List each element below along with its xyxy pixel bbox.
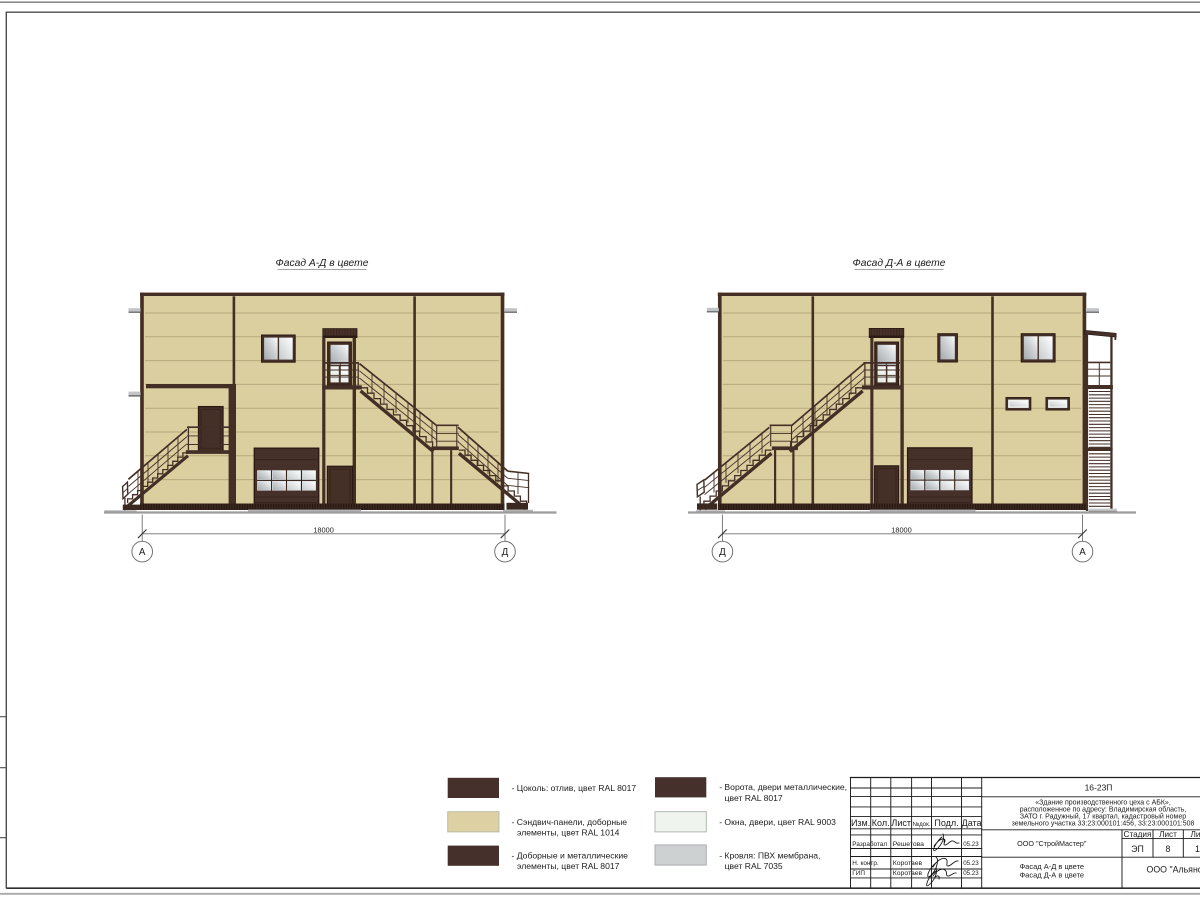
svg-text:18000: 18000 [313,526,334,535]
svg-text:- Кровля: ПВХ мембрана,: - Кровля: ПВХ мембрана, [719,851,820,861]
svg-text:элементы, цвет RAL 8017: элементы, цвет RAL 8017 [517,861,620,871]
svg-text:Лис: Лис [1190,830,1200,839]
svg-text:Фасад А-Д в цвете: Фасад А-Д в цвете [276,258,369,269]
svg-text:05.23: 05.23 [963,860,979,867]
svg-text:А: А [139,547,146,558]
svg-text:№док.: №док. [912,821,930,828]
svg-text:Д: Д [719,547,726,558]
svg-text:Кол.: Кол. [872,818,890,828]
svg-text:Лист: Лист [891,818,911,828]
svg-text:Дата: Дата [962,818,982,828]
svg-text:Решетова: Решетова [893,841,924,848]
svg-text:Коротаев: Коротаев [893,870,923,877]
svg-text:ООО "Альянс": ООО "Альянс" [1147,865,1200,875]
svg-text:Изм.: Изм. [851,818,870,828]
svg-text:цвет RAL 7035: цвет RAL 7035 [725,861,783,871]
svg-text:- Ворота, двери металлические,: - Ворота, двери металлические, [719,782,847,792]
svg-text:- Доборные и металлические: - Доборные и металлические [512,851,629,861]
svg-text:Фасад А-Д в цвете: Фасад А-Д в цвете [1019,862,1084,871]
svg-text:ГИП: ГИП [852,870,865,877]
svg-text:расположенное по адресу: Влади: расположенное по адресу: Владимирская об… [1020,806,1187,814]
svg-text:А: А [1079,547,1086,558]
svg-text:8: 8 [1166,844,1171,854]
svg-text:ЭП: ЭП [1131,844,1144,854]
svg-text:1: 1 [1195,844,1200,854]
svg-text:18000: 18000 [891,526,912,535]
svg-text:ЗАТО г. Радужный, 17 квартал,: ЗАТО г. Радужный, 17 квартал, кадастровы… [1020,812,1186,820]
svg-text:цвет RAL 8017: цвет RAL 8017 [725,793,783,803]
svg-text:Д: Д [502,547,509,558]
svg-text:ООО "СтройМастер": ООО "СтройМастер" [1017,839,1087,848]
svg-text:Стадия: Стадия [1124,830,1152,839]
svg-text:- Сэндвич-панели, доборные: - Сэндвич-панели, доборные [512,817,628,827]
svg-text:- Окна, двери, цвет RAL 9003: - Окна, двери, цвет RAL 9003 [719,817,836,827]
svg-text:земельного участка 33:23:00010: земельного участка 33:23:000101:456, 33:… [1012,820,1195,827]
svg-text:05.23: 05.23 [963,841,979,848]
svg-text:Подл.: Подл. [934,818,958,828]
svg-text:05.23: 05.23 [963,870,979,877]
svg-text:элементы, цвет RAL 1014: элементы, цвет RAL 1014 [517,827,620,837]
svg-text:Фасад Д-А в цвете: Фасад Д-А в цвете [1019,871,1084,880]
svg-text:Лист: Лист [1159,830,1177,839]
svg-text:Н. контр.: Н. контр. [852,860,879,867]
svg-text:Коротаев: Коротаев [893,860,923,867]
svg-text:Фасад Д-А в цвете: Фасад Д-А в цвете [853,258,946,269]
svg-text:Разработал: Разработал [852,840,887,848]
svg-text:- Цоколь: отлив, цвет RAL 8017: - Цоколь: отлив, цвет RAL 8017 [512,783,637,793]
svg-text:16-23П: 16-23П [1085,783,1113,793]
